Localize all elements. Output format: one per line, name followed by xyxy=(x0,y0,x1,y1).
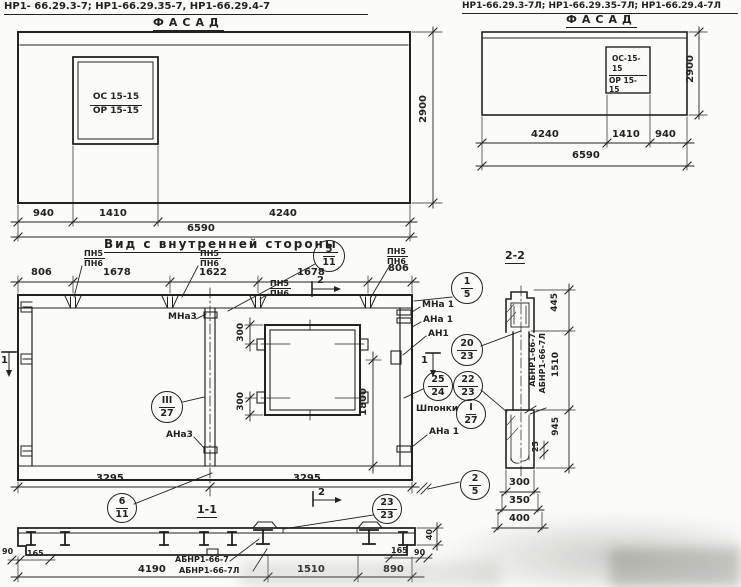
label-abnr-2: АБНР1-66-7 xyxy=(529,333,537,387)
callout-top: 20 xyxy=(457,339,476,351)
dim-1410-left: 1410 xyxy=(99,209,127,219)
pn-label-3: ПН5 ПН6 xyxy=(270,279,291,298)
window-mark-line2: ОР 15-15 xyxy=(609,76,647,96)
callout-1-5: 1 5 xyxy=(451,272,483,304)
callout-23-23: 23 23 xyxy=(372,494,402,524)
label-mna1: МНа 1 xyxy=(422,301,454,310)
callout-5-11: 5 11 xyxy=(313,240,345,272)
dim-3295-left: 3295 xyxy=(96,474,124,484)
dim-1510-s2: 1510 xyxy=(552,352,561,377)
dim-1678-1: 1678 xyxy=(103,268,131,278)
dim-2900-right: 2900 xyxy=(686,55,696,83)
callout-top: 22 xyxy=(458,375,477,387)
window-mark-line1: ОС-15-15 xyxy=(609,54,647,76)
label-ana1-bottom: АНа 1 xyxy=(429,428,459,437)
pn-label-2: ПН5 ПН6 xyxy=(200,249,221,268)
callout-bottom: 23 xyxy=(461,387,474,398)
section1-title: 1-1 xyxy=(197,504,217,518)
callout-top: 1 xyxy=(461,277,474,289)
label-an1: АН1 xyxy=(428,330,449,339)
dim-940-right: 940 xyxy=(655,130,676,140)
label-mna3: МНа3 xyxy=(168,313,197,322)
dim-400-s2: 400 xyxy=(509,514,530,524)
label-abnr-1: АБНР1-66-7 xyxy=(175,556,229,564)
callout-top: 25 xyxy=(428,375,447,387)
callout-bottom: 11 xyxy=(322,257,335,268)
callout-bottom: 5 xyxy=(464,289,471,300)
dim-25: 25 xyxy=(532,441,540,452)
window-mark-line1: ОС 15-15 xyxy=(90,92,142,106)
callout-top: 23 xyxy=(377,498,396,510)
pn-top: ПН5 xyxy=(200,249,221,259)
drawing-marks-title-left: НР1- 66.29.3-7; НР1-66.29.35-7, НР1-66.2… xyxy=(4,2,368,15)
dim-940-left: 940 xyxy=(33,209,54,219)
callout-top: I xyxy=(466,403,476,415)
window-mark-left: ОС 15-15 ОР 15-15 xyxy=(84,92,148,117)
dim-1510-s1: 1510 xyxy=(297,565,325,575)
pn-bottom: ПН6 xyxy=(270,289,291,298)
callout-22-23: 22 23 xyxy=(453,371,483,401)
facade-right-lines xyxy=(476,27,707,170)
dim-350-s2: 350 xyxy=(509,496,530,506)
callout-20-23: 20 23 xyxy=(451,334,483,366)
window-mark-line2: ОР 15-15 xyxy=(93,106,139,118)
pn-top: ПН5 xyxy=(387,247,408,257)
dim-1410-right: 1410 xyxy=(612,130,640,140)
label-shponki: Шпонки xyxy=(416,405,458,414)
inner-view-lines xyxy=(2,276,440,506)
dim-300-bottom: 300 xyxy=(237,392,246,411)
callout-I-27: I 27 xyxy=(456,399,486,429)
section-mark-1-left: 1 xyxy=(1,356,8,366)
callout-bottom: 23 xyxy=(380,510,393,521)
facade-left-title: ФАСАД xyxy=(153,17,224,31)
dim-4190: 4190 xyxy=(138,565,166,575)
section2-title: 2-2 xyxy=(505,250,525,264)
dim-890: 890 xyxy=(383,565,404,575)
facade-right-title: ФАСАД xyxy=(566,14,637,28)
callout-bottom: 27 xyxy=(464,415,477,426)
dim-1622: 1622 xyxy=(199,268,227,278)
callout-2-5: 2 5 xyxy=(460,470,490,500)
dim-300-s2: 300 xyxy=(509,478,530,488)
section-mark-2-bottom: 2 xyxy=(318,488,325,498)
callout-top: III xyxy=(159,396,176,408)
dim-445: 445 xyxy=(551,293,560,312)
dim-945: 945 xyxy=(552,417,561,436)
dim-1800: 1800 xyxy=(359,388,369,416)
pn-bottom: ПН6 xyxy=(84,259,105,268)
blueprint-sheet: НР1- 66.29.3-7; НР1-66.29.35-7, НР1-66.2… xyxy=(0,0,741,587)
dim-4240-right: 4240 xyxy=(531,130,559,140)
section-mark-2-top: 2 xyxy=(317,276,324,286)
callout-top: 2 xyxy=(469,474,482,486)
callout-bottom: 24 xyxy=(431,387,444,398)
dim-165-left: 165 xyxy=(27,550,44,558)
callout-top: 6 xyxy=(116,497,129,509)
pn-label-1: ПН5 ПН6 xyxy=(84,249,105,268)
pn-top: ПН5 xyxy=(270,279,291,289)
label-abnr-1l: АБНР1-66-7Л xyxy=(179,567,239,575)
dim-3295-right: 3295 xyxy=(293,474,321,484)
label-abnr-2l: АБНР1-66-7Л xyxy=(539,333,547,393)
dim-90-right: 90 xyxy=(414,549,425,557)
window-mark-right: ОС-15-15 ОР 15-15 xyxy=(609,54,647,95)
label-ana1: АНа 1 xyxy=(423,316,453,325)
dim-300-top: 300 xyxy=(237,323,246,342)
callout-bottom: 23 xyxy=(460,351,473,362)
callout-bottom: 11 xyxy=(115,509,128,520)
dim-2900-left: 2900 xyxy=(419,95,429,123)
callout-bottom: 27 xyxy=(160,408,173,419)
callout-6-11: 6 11 xyxy=(107,493,137,523)
dim-6590-left: 6590 xyxy=(187,224,215,234)
dim-806-2: 806 xyxy=(388,264,409,274)
dim-40: 40 xyxy=(426,529,434,540)
dim-6590-right: 6590 xyxy=(572,151,600,161)
callout-bottom: 5 xyxy=(472,486,479,497)
callout-top: 5 xyxy=(323,245,336,257)
callout-25-24: 25 24 xyxy=(423,371,453,401)
dim-806-1: 806 xyxy=(31,268,52,278)
facade-left-lines xyxy=(11,27,442,241)
dim-4240-left: 4240 xyxy=(269,209,297,219)
callout-III-27: III 27 xyxy=(151,391,183,423)
dim-90-left: 90 xyxy=(2,548,13,556)
dim-165-right: 165 xyxy=(391,547,408,555)
pn-top: ПН5 xyxy=(84,249,105,259)
label-ana3: АНа3 xyxy=(166,431,193,440)
section-mark-1-right: 1 xyxy=(421,356,428,366)
